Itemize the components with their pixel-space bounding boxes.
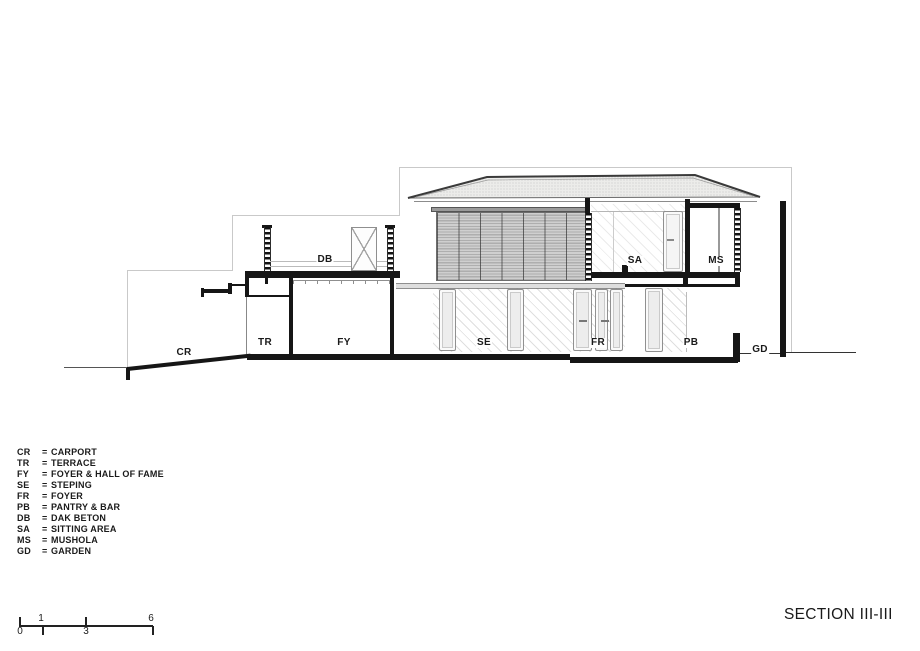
slab-end-cap	[735, 278, 740, 287]
legend-name: DAK BETON	[51, 513, 106, 524]
background-outline-top-horizontal	[399, 167, 792, 168]
canopy-bar	[202, 289, 231, 293]
legend-row: FY=FOYER & HALL OF FAME	[17, 469, 164, 480]
legend-abbr: FR	[17, 491, 42, 502]
legend-row: DB=DAK BETON	[17, 513, 164, 524]
legend-name: CARPORT	[51, 447, 97, 458]
terrace-box-hanger	[265, 278, 268, 284]
scale-number-6: 6	[144, 614, 158, 624]
label-dak-beton: DB	[316, 255, 333, 265]
legend-equals: =	[42, 491, 51, 502]
scale-tick-0	[19, 617, 21, 626]
hip-roof	[404, 170, 764, 204]
legend-name: MUSHOLA	[51, 535, 98, 546]
sitting-area-door	[663, 211, 683, 272]
ground-line-left	[64, 367, 127, 368]
abbreviation-legend: CR=CARPORT TR=TERRACE FY=FOYER & HALL OF…	[17, 447, 164, 557]
floor-slab-lower	[570, 357, 738, 363]
legend-abbr: PB	[17, 502, 42, 513]
wall-sa-ms	[685, 199, 690, 278]
background-outline-left-vertical	[127, 270, 128, 367]
legend-equals: =	[42, 447, 51, 458]
pantry-window	[645, 288, 663, 352]
door-handle-mark-1	[579, 320, 587, 322]
glazing-mullion-2	[507, 289, 524, 351]
carport-ramp-stub	[126, 367, 130, 380]
legend-row: SA=SITTING AREA	[17, 524, 164, 535]
sitting-area-panel-joint	[613, 212, 614, 272]
scale-number-1: 1	[34, 614, 48, 624]
legend-name: FOYER	[51, 491, 83, 502]
legend-name: TERRACE	[51, 458, 96, 469]
background-outline-step-vertical	[232, 215, 233, 270]
wall-stub-louver-right	[585, 198, 590, 213]
background-outline-step-horizontal	[127, 270, 233, 271]
legend-abbr: DB	[17, 513, 42, 524]
legend-equals: =	[42, 513, 51, 524]
legend-name: STEPING	[51, 480, 92, 491]
blueprint-canvas: CR TR FY SE FR PB GD DB SA MS CR=CARPORT…	[0, 0, 920, 651]
legend-row: FR=FOYER	[17, 491, 164, 502]
legend-equals: =	[42, 458, 51, 469]
scale-tick-3	[85, 617, 87, 626]
pantry-ceiling-line	[625, 284, 740, 287]
label-steping: SE	[476, 338, 492, 348]
label-foyer: FR	[590, 338, 606, 348]
sectioned-column-right	[734, 208, 741, 272]
legend-row: PB=PANTRY & BAR	[17, 502, 164, 513]
legend-row: TR=TERRACE	[17, 458, 164, 469]
dak-beton-slab	[245, 271, 400, 278]
legend-equals: =	[42, 480, 51, 491]
legend-equals: =	[42, 469, 51, 480]
floor-slab-main	[247, 354, 570, 360]
legend-row: SE=STEPING	[17, 480, 164, 491]
section-title: SECTION III-III	[784, 606, 893, 624]
legend-abbr: SA	[17, 524, 42, 535]
canopy-thin-ledge	[231, 284, 248, 286]
foyer-ceiling-ticks	[293, 281, 390, 284]
legend-abbr: GD	[17, 546, 42, 557]
glazing-mullion-1	[439, 289, 456, 351]
background-outline-upper-vertical	[399, 167, 400, 215]
scale-number-0: 0	[13, 627, 27, 637]
label-mushola: MS	[707, 256, 725, 266]
background-outline-right-vertical	[791, 167, 792, 353]
legend-abbr: TR	[17, 458, 42, 469]
legend-name: SITTING AREA	[51, 524, 117, 535]
label-terrace: TR	[257, 338, 273, 348]
door-handle-mark-2	[601, 320, 609, 322]
garden-tall-wall	[780, 201, 786, 357]
scale-tick-6	[152, 626, 154, 635]
legend-abbr: CR	[17, 447, 42, 458]
slab-stub-fr-pb	[683, 278, 688, 284]
legend-row: CR=CARPORT	[17, 447, 164, 458]
legend-name: PANTRY & BAR	[51, 502, 120, 513]
legend-row: MS=MUSHOLA	[17, 535, 164, 546]
scale-tick-1	[42, 626, 44, 635]
background-outline-mid-horizontal	[232, 215, 400, 216]
legend-abbr: MS	[17, 535, 42, 546]
deck-access-door	[351, 227, 377, 271]
scale-number-3: 3	[79, 627, 93, 637]
glass-door-leaf-2	[610, 289, 623, 351]
door-handle-mark	[667, 239, 674, 241]
railing-post-left	[264, 227, 271, 271]
upper-floor-slab	[591, 272, 740, 278]
railing-post-right	[387, 227, 394, 271]
legend-row: GD=GARDEN	[17, 546, 164, 557]
louver-screen-panel	[436, 212, 587, 281]
wall-corner-fr	[622, 265, 628, 273]
label-sitting-area: SA	[627, 256, 644, 266]
label-garden: GD	[751, 345, 769, 355]
legend-abbr: SE	[17, 480, 42, 491]
legend-equals: =	[42, 546, 51, 557]
legend-equals: =	[42, 502, 51, 513]
terrace-left-post-line	[246, 297, 247, 354]
legend-equals: =	[42, 535, 51, 546]
legend-equals: =	[42, 524, 51, 535]
terrace-box-bottom-edge	[245, 295, 293, 297]
legend-abbr: FY	[17, 469, 42, 480]
beam-over-mushola	[690, 203, 740, 208]
label-carport: CR	[175, 348, 192, 358]
wall-fy-right	[390, 271, 394, 355]
garden-ground-line-outer	[786, 352, 856, 353]
label-pantry-bar: PB	[683, 338, 700, 348]
label-foyer-hall: FY	[336, 338, 351, 348]
legend-name: GARDEN	[51, 546, 91, 557]
legend-name: FOYER & HALL OF FAME	[51, 469, 164, 480]
